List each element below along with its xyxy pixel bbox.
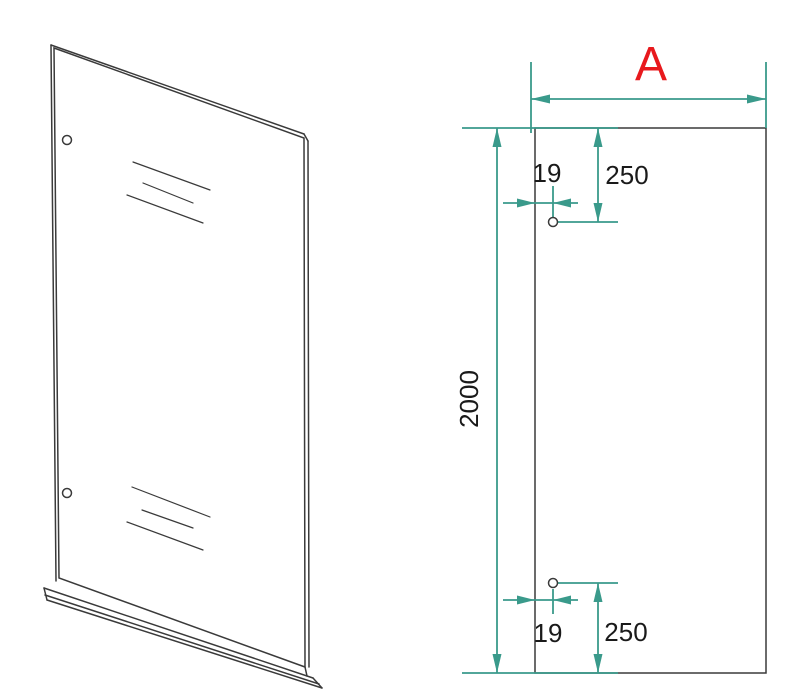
hole-bottom-3d xyxy=(63,489,72,498)
drawing-canvas: A 2000 250 xyxy=(0,0,800,698)
glass-right-back-edge xyxy=(308,141,309,667)
hole-top-2d xyxy=(549,218,558,227)
bottom-distance-label: 250 xyxy=(604,617,647,647)
hole-top-3d xyxy=(63,136,72,145)
panel-front-view: A 2000 250 xyxy=(454,38,766,673)
top-offset-label: 19 xyxy=(533,158,562,188)
top-distance-label: 250 xyxy=(605,160,648,190)
arrowhead-right xyxy=(517,199,535,208)
panel-outline xyxy=(535,128,766,673)
arrowhead-right xyxy=(747,95,766,104)
arrowhead-up xyxy=(493,128,502,147)
arrowhead-left xyxy=(531,95,550,104)
glass-front-face xyxy=(54,48,305,667)
panel-perspective-view xyxy=(44,45,322,688)
rail-left-end-cap xyxy=(44,588,47,600)
height-label: 2000 xyxy=(454,370,484,428)
dimension-width: A xyxy=(531,38,766,133)
arrowhead-down xyxy=(493,654,502,673)
bottom-offset-label: 19 xyxy=(534,618,563,648)
technical-drawing: A 2000 250 xyxy=(0,0,800,698)
hole-bottom-2d xyxy=(549,579,558,588)
width-label: A xyxy=(635,38,667,91)
arrowhead-right xyxy=(517,596,535,605)
